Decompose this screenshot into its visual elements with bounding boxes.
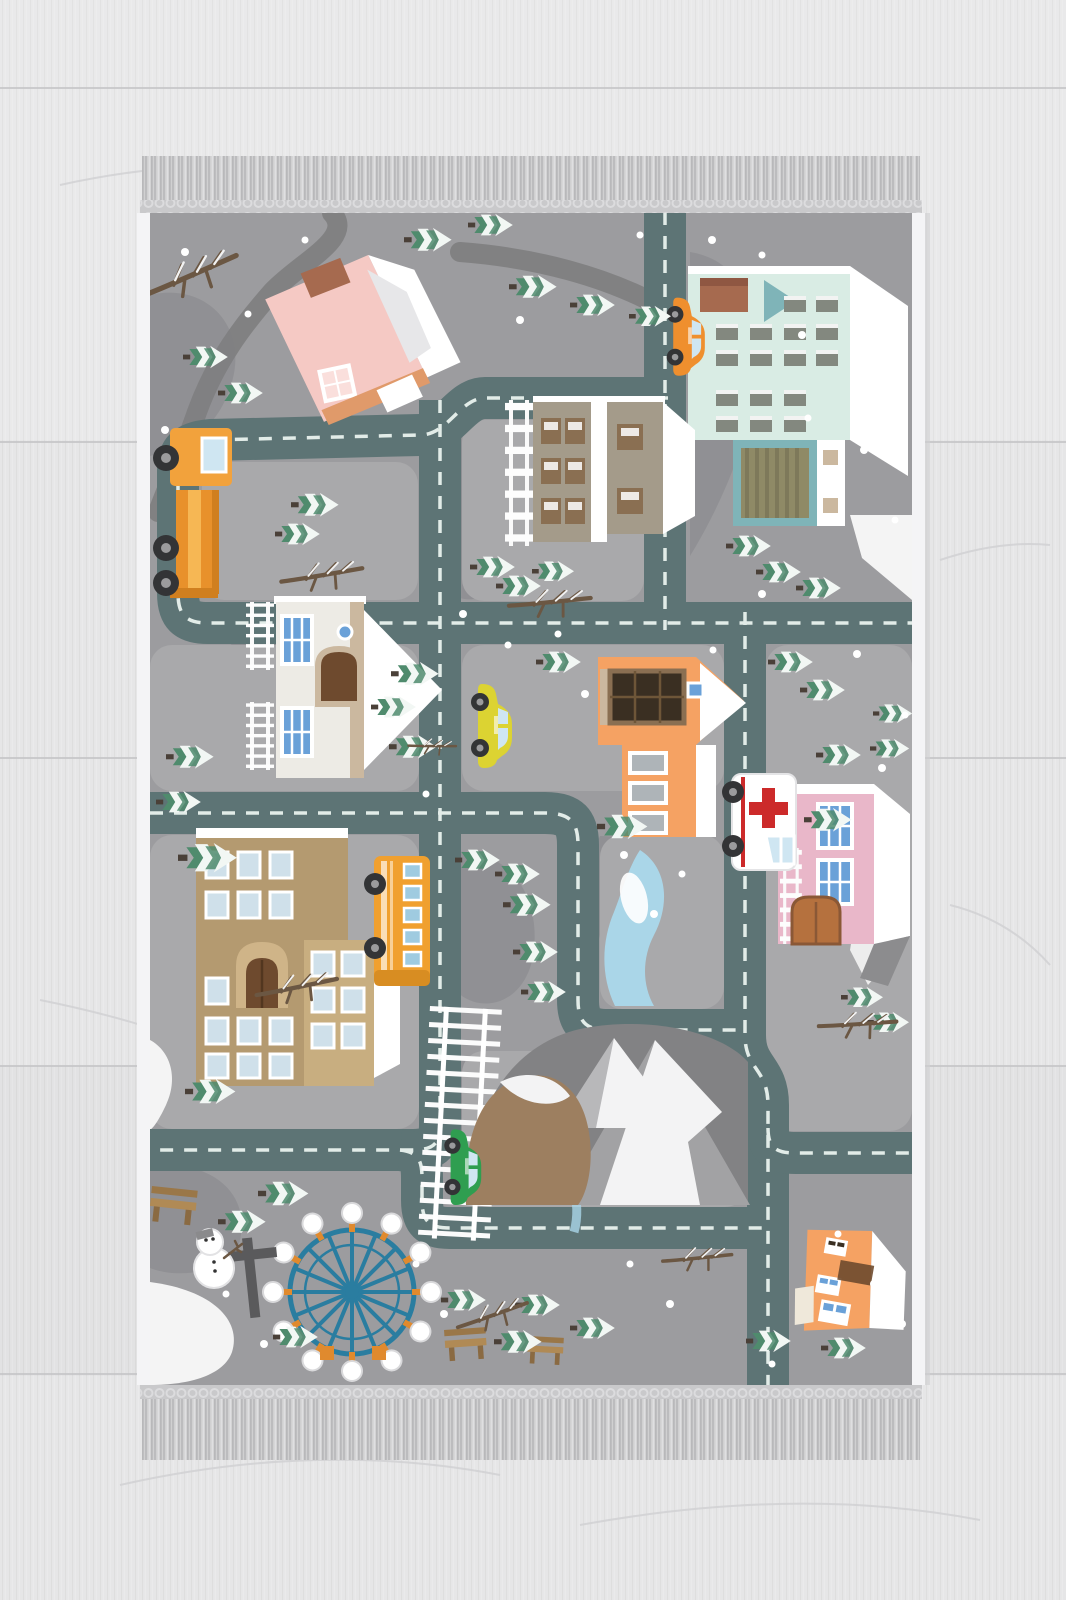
ambulance: [722, 774, 796, 870]
product-photo: [0, 0, 1066, 1600]
tan-apartment: [505, 396, 695, 546]
fringe-bottom: [142, 1398, 920, 1460]
selvedge-right: [912, 213, 925, 1385]
fringe-top: [142, 156, 920, 202]
fringe-bottom-knots: [140, 1384, 922, 1399]
scene-canvas: [0, 0, 1066, 1600]
fringe-top-knots: [140, 200, 922, 214]
school-entrance: [236, 942, 288, 1008]
garage: [733, 440, 845, 526]
selvedge-left: [137, 213, 150, 1385]
play-rug: [137, 156, 930, 1460]
